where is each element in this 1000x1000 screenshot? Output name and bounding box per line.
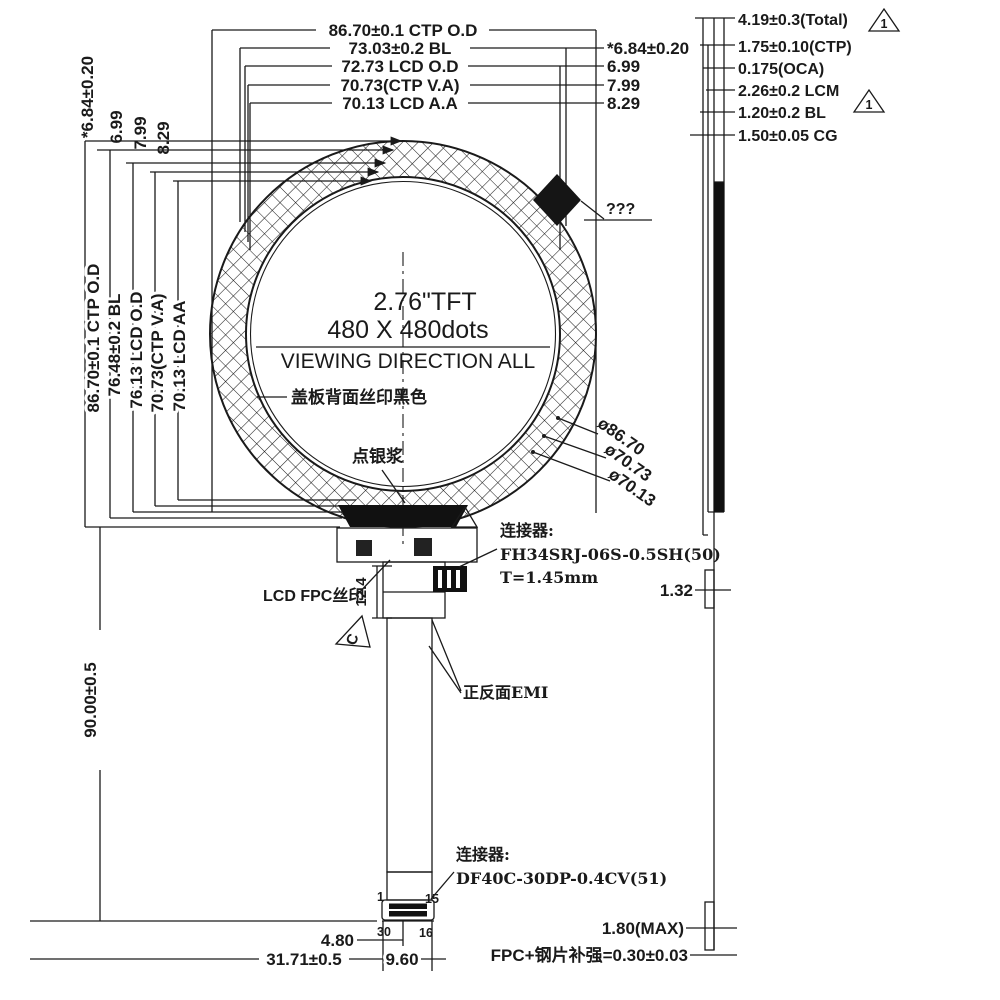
offset-left-829: 8.29 bbox=[154, 121, 173, 154]
top-connector-part: FH34SRJ-06S-0.5SH(50) bbox=[500, 545, 721, 564]
dim-bl: 73.03±0.2 BL bbox=[349, 39, 452, 58]
connector-slot bbox=[438, 570, 442, 588]
side-black-stack bbox=[714, 182, 724, 512]
dim-fpc-width: 31.71±0.5 bbox=[266, 950, 342, 969]
stack-dim-cg: 1.50±0.05 CG bbox=[738, 128, 838, 145]
lcd-dimension-drawing: 86.70±0.1 CTP O.D 73.03±0.2 BL 72.73 LCD… bbox=[0, 0, 1000, 1000]
offset-right-829: 8.29 bbox=[607, 94, 640, 113]
viewing-direction: VIEWING DIRECTION ALL bbox=[281, 350, 535, 373]
pin-30: 30 bbox=[377, 925, 391, 939]
top-connector-height: T=1.45mm bbox=[500, 568, 598, 587]
unknown-note: ??? bbox=[606, 201, 635, 218]
component-chip bbox=[414, 538, 432, 556]
dim-lcd-od: 72.73 LCD O.D bbox=[341, 57, 458, 76]
black-print-bar bbox=[338, 505, 468, 527]
leader-dot bbox=[542, 434, 546, 438]
display-resolution: 480 X 480dots bbox=[327, 316, 488, 344]
offset-right-684: *6.84±0.20 bbox=[607, 39, 689, 58]
dim-total-height: 90.00±0.5 bbox=[81, 662, 100, 738]
dim-left-bl: 76.48±0.2 BL bbox=[105, 294, 124, 397]
offset-left-699: 6.99 bbox=[107, 110, 126, 143]
component-chip bbox=[356, 540, 372, 556]
connector-slot bbox=[447, 570, 451, 588]
drawing-page: 86.70±0.1 CTP O.D 73.03±0.2 BL 72.73 LCD… bbox=[0, 0, 1000, 1000]
dim-conn-width: 9.60 bbox=[385, 950, 418, 969]
connector-bar bbox=[389, 911, 427, 917]
dim-max-height: 1.80(MAX) bbox=[602, 919, 684, 938]
dim-stiffener: FPC+钢片补强=0.30±0.03 bbox=[491, 945, 688, 965]
pin-1: 1 bbox=[377, 890, 384, 904]
stack-dim-oca: 0.175(OCA) bbox=[738, 61, 824, 78]
dim-left-ctp-va: 70.73(CTP V.A) bbox=[148, 293, 167, 412]
pin-16: 16 bbox=[419, 926, 433, 940]
connector-bar bbox=[389, 904, 427, 910]
display-size: 2.76"TFT bbox=[373, 288, 476, 316]
dim-conn-height: 1.32 bbox=[660, 581, 693, 600]
dim-lcd-aa: 70.13 LCD A.A bbox=[342, 94, 458, 113]
dim-pitch: 4.80 bbox=[321, 931, 354, 950]
dim-left-ctp-od: 86.70±0.1 CTP O.D bbox=[84, 264, 103, 413]
stack-dim-ctp: 1.75±0.10(CTP) bbox=[738, 39, 852, 56]
dim-left-lcd-aa: 70.13 LCD AA bbox=[170, 301, 189, 412]
lcd-fpc-print-note: LCD FPC丝印 bbox=[263, 586, 364, 605]
top-connector-label: 连接器: bbox=[500, 521, 554, 540]
emi-note: 正反面EMI bbox=[463, 683, 548, 702]
dim-ctp-od: 86.70±0.1 CTP O.D bbox=[329, 21, 478, 40]
stack-dim-lcm: 2.26±0.2 LCM bbox=[738, 83, 839, 100]
stack-dim-total: 4.19±0.3(Total) bbox=[738, 12, 848, 29]
leader-dot bbox=[531, 450, 535, 454]
revision-number: 1 bbox=[866, 98, 873, 112]
offset-right-699: 6.99 bbox=[607, 57, 640, 76]
dim-ctp-va: 70.73(CTP V.A) bbox=[340, 76, 459, 95]
dim-left-lcd-od: 76.13 LCD O.D bbox=[127, 291, 146, 408]
offset-left-684: *6.84±0.20 bbox=[78, 56, 97, 138]
offset-left-799: 7.99 bbox=[131, 116, 150, 149]
bottom-connector-label: 连接器: bbox=[456, 845, 510, 864]
pin-15: 15 bbox=[425, 892, 439, 906]
leader-dot bbox=[556, 416, 560, 420]
connector-slot bbox=[456, 570, 460, 588]
silver-paste-note: 点银浆 bbox=[352, 446, 404, 466]
bottom-connector-part: DF40C-30DP-0.4CV(51) bbox=[456, 869, 667, 888]
offset-right-799: 7.99 bbox=[607, 76, 640, 95]
stack-dim-bl: 1.20±0.2 BL bbox=[738, 105, 826, 122]
cover-print-note: 盖板背面丝印黑色 bbox=[291, 387, 427, 407]
revision-number: 1 bbox=[881, 17, 888, 31]
